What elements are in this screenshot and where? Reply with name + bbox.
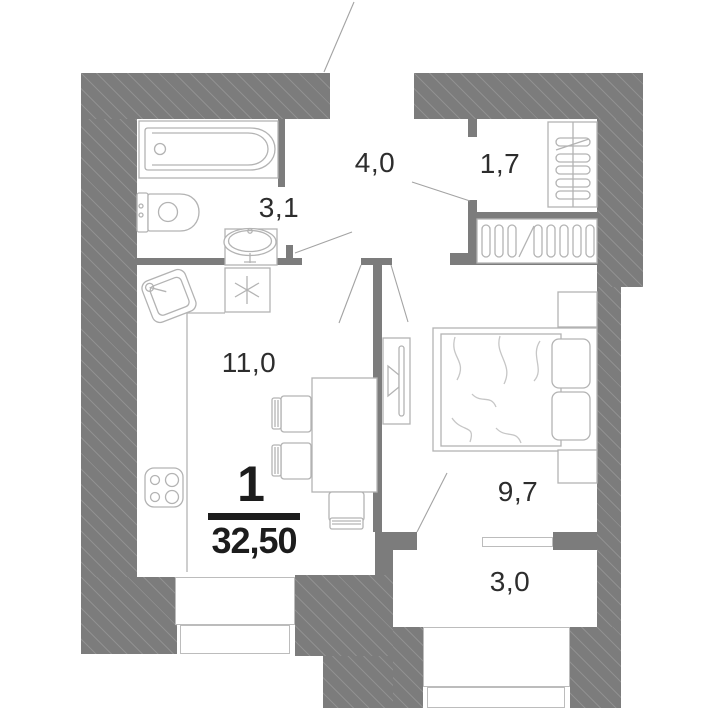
chair-icon [272, 396, 311, 432]
wardrobe-hangers-icon [477, 219, 597, 263]
bed-icon [433, 328, 597, 451]
floor-plan: 4,0 1,7 3,1 11,0 9,7 3,0 1 32,50 [0, 0, 720, 720]
room-label-bathroom: 3,1 [259, 192, 299, 224]
pillow-icon [552, 392, 590, 440]
nightstand-icon [558, 450, 597, 483]
apartment-rooms-count: 1 [237, 455, 265, 513]
entry-door-swing-line [324, 2, 354, 72]
pillow-icon [552, 339, 590, 388]
room-label-balcony: 3,0 [490, 566, 530, 598]
room-label-storage: 1,7 [480, 148, 520, 180]
chair-icon [272, 443, 311, 479]
room-label-bedroom: 9,7 [498, 476, 538, 508]
kitchen-sink-icon [140, 267, 199, 325]
bathroom-door-swing-line [295, 232, 352, 253]
fixtures-layer [0, 0, 720, 720]
stove-icon [145, 468, 183, 507]
vent-icon [225, 268, 270, 312]
chair-icon [329, 492, 364, 529]
washbasin-icon [224, 229, 277, 266]
nightstand-icon [558, 292, 597, 327]
bedroom-doorway-line-right [391, 265, 408, 322]
room-label-kitchen-living: 11,0 [222, 347, 276, 379]
balcony-door-swing-line [417, 473, 447, 532]
tv-icon [383, 338, 410, 424]
bathtub-icon [139, 121, 278, 178]
dining-table-icon [312, 378, 377, 492]
bedroom-doorway-line-left [339, 265, 361, 323]
toilet-icon [137, 193, 199, 232]
room-label-hallway: 4,0 [355, 147, 395, 179]
apartment-total-area: 32,50 [211, 520, 296, 562]
shelf-rack-icon [548, 122, 597, 207]
apartment-divider [208, 513, 300, 520]
storage-door-swing-line [412, 182, 470, 201]
